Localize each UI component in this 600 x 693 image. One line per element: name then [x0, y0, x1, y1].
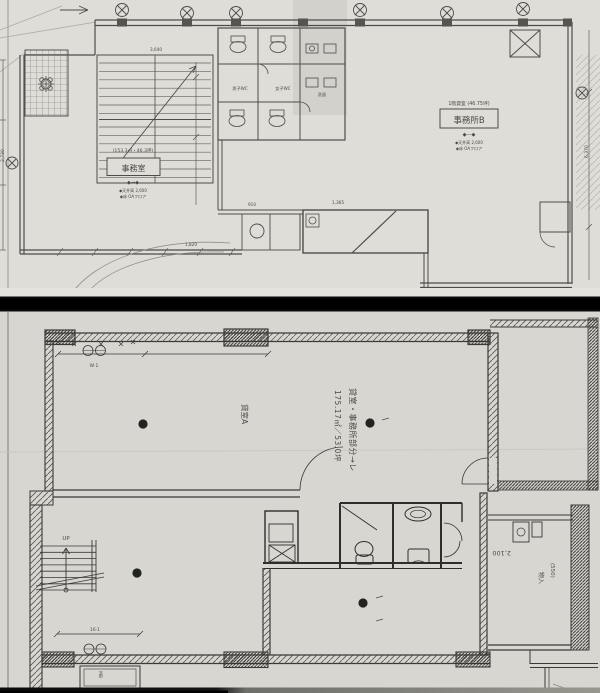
storage-label: 物入 — [537, 572, 545, 584]
wc-label: 女子WC — [275, 85, 291, 92]
left-room-marker: ◆→◆ — [127, 180, 139, 186]
right-room-heading: 1階貸室 (46.75坪) — [448, 100, 489, 107]
wc-label: 男子WC — [232, 85, 248, 92]
left-room-note: ◆天井高 2,600 — [119, 187, 147, 193]
dim-text: 1,820 — [185, 242, 197, 247]
dim-550: (550) — [549, 563, 555, 578]
stair-up-label: UP — [62, 536, 70, 542]
bottom-plan: 2,100 (550) 物入 MB 16·1 — [0, 312, 600, 693]
left-room-label: 事務室 — [122, 163, 146, 173]
left-room-area: (153.3㎡・46.3坪) — [113, 147, 154, 154]
handwritten-note-line: 175.17㎡／53.0坪 — [333, 390, 342, 462]
scanned-floor-plan-page: 男子WC 女子WC 洗面 (153.3㎡・46.3坪) 事務室 — [0, 0, 600, 693]
dim-w1: W·1 — [90, 363, 99, 369]
left-room-note: ◆床 OAフロア — [120, 193, 146, 199]
right-room-marker: ◆—◆ — [463, 132, 476, 138]
dim-text: 910 — [248, 202, 256, 207]
right-room-note: ◆床 OAフロア — [456, 145, 482, 151]
dim-161: 16·1 — [90, 627, 100, 633]
right-room-label: 事務所B — [453, 115, 485, 126]
separator-bar — [0, 288, 600, 312]
column-dot — [138, 419, 147, 428]
column-dot — [358, 598, 367, 607]
handwritten-note-line: 貸室・事務所部分→レ — [348, 388, 358, 472]
dim-text: 6,370 — [584, 145, 590, 158]
tenant-label: 貸室A — [240, 404, 250, 425]
dim-text: 1,365 — [332, 200, 344, 205]
dim-text: 2,730 — [0, 149, 6, 162]
meter-box-label: MB — [97, 671, 103, 678]
gridded-floor-area — [25, 50, 68, 116]
floor-plan-svg: 男子WC 女子WC 洗面 (153.3㎡・46.3坪) 事務室 — [0, 0, 600, 693]
right-room-note: ◆天井高 2,600 — [455, 139, 483, 145]
washroom-label: 洗面 — [318, 91, 326, 98]
fold-shadow — [293, 0, 347, 115]
column-dot — [132, 568, 141, 577]
dim-2100: 2,100 — [492, 549, 511, 557]
scan-edge-texture — [576, 55, 600, 210]
lower-mid-wall — [263, 568, 270, 655]
dim-text: 3,640 — [150, 47, 162, 52]
survey-symbol-icon — [38, 76, 54, 92]
column-dot — [365, 418, 374, 427]
top-plan: 男子WC 女子WC 洗面 (153.3㎡・46.3坪) 事務室 — [0, 0, 600, 297]
